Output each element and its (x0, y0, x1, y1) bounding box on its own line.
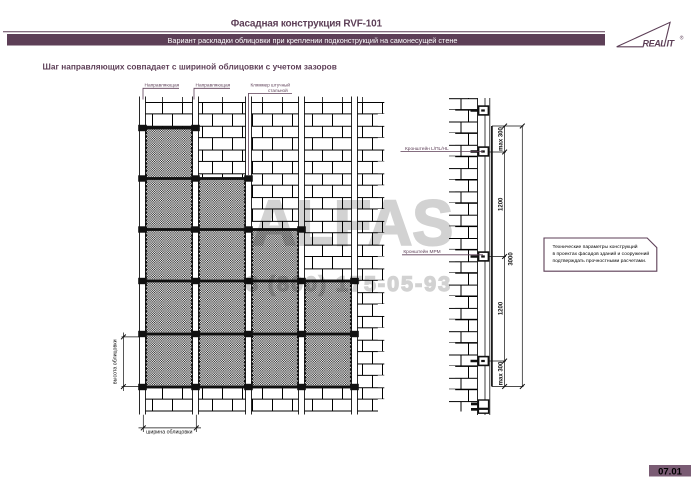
svg-text:Кронштейн L/ПL/НL: Кронштейн L/ПL/НL (405, 145, 449, 152)
svg-text:в проектах фасадов зданий и со: в проектах фасадов зданий и сооружений (553, 250, 650, 257)
svg-text:max 300: max 300 (498, 126, 504, 150)
svg-text:1200: 1200 (498, 197, 504, 211)
svg-text:max 300: max 300 (498, 361, 504, 385)
svg-text:высота облицовки: высота облицовки (113, 339, 119, 384)
svg-text:07.01: 07.01 (658, 467, 682, 478)
svg-text:8 (800) 175-05-93: 8 (800) 175-05-93 (246, 272, 452, 296)
svg-text:REAL: REAL (643, 38, 666, 48)
svg-text:Кляммер штучный: Кляммер штучный (251, 82, 291, 88)
svg-text:1200: 1200 (498, 301, 504, 315)
svg-text:Фасадная конструкция RVF-101: Фасадная конструкция RVF-101 (231, 18, 383, 29)
svg-text:3000: 3000 (509, 252, 515, 266)
svg-text:подтверждать прочностными расч: подтверждать прочностными расчетами. (553, 259, 647, 264)
svg-text:ширина облицовки: ширина облицовки (146, 430, 192, 436)
svg-text:®: ® (680, 34, 684, 41)
svg-text:Направляющая: Направляющая (145, 83, 180, 89)
svg-text:ALFAS: ALFAS (252, 188, 453, 259)
svg-text:стальной: стальной (268, 87, 288, 93)
svg-text:Технические параметры конструк: Технические параметры конструкций (553, 243, 638, 250)
svg-text:Шаг направляющих совпадает с ш: Шаг направляющих совпадает с шириной обл… (43, 61, 337, 71)
svg-text:Вариант раскладки облицовки пр: Вариант раскладки облицовки при креплени… (168, 36, 458, 45)
svg-text:Направляющая: Направляющая (196, 83, 231, 89)
